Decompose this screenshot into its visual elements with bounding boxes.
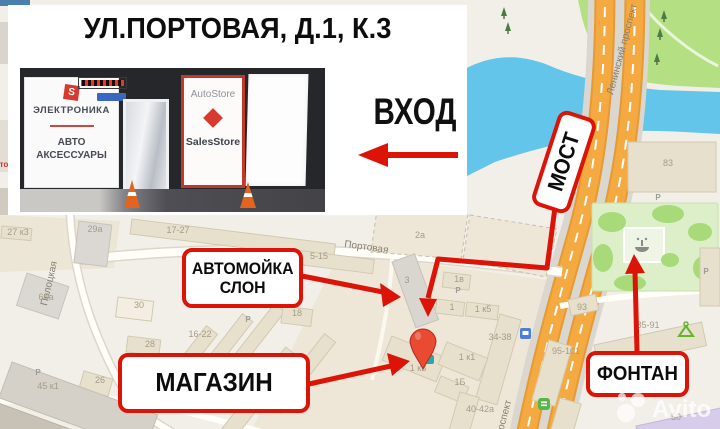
map-label-bldg: 28 (145, 339, 155, 349)
pavement (20, 189, 325, 212)
map-label-bldg: 1Б (455, 377, 466, 387)
map-label-bldg: 50 (671, 412, 681, 422)
entrance-label: ВХОД (371, 91, 459, 133)
map-label-bldg: 1в (454, 274, 464, 284)
left-banner-title: ЭЛЕКТРОНИКА (25, 105, 118, 116)
open-white-door (246, 74, 309, 186)
street-sign (97, 93, 126, 101)
map-label-bldg: 34-38 (488, 332, 511, 342)
callout-carwash-line2: СЛОН (192, 278, 294, 297)
map-label-bldg: 17-27 (166, 225, 189, 235)
map-label-bldg: 93 (577, 302, 587, 312)
left-banner-sub1: АВТО (25, 136, 118, 149)
callout-fountain-label: ФОНТАН (597, 363, 678, 385)
map-label-bldg: 45 к1 (37, 381, 58, 391)
center-banner: AutoStore SalesStore (181, 75, 245, 188)
transit-stop-icon (520, 328, 531, 339)
map-label-bldg: 1 (449, 302, 454, 312)
map-label-bldg: 26 (95, 375, 105, 385)
map-label-parking: Р (455, 286, 461, 295)
map-label-bldg: 5-15 (310, 251, 328, 261)
map-label-parking: Р (703, 267, 709, 276)
map-label-bldg: 18 (292, 308, 302, 318)
map-label-parking: Р (245, 315, 251, 324)
page-title: УЛ.ПОРТОВАЯ, Д.1, К.3 (22, 13, 453, 46)
fountain-park (592, 203, 718, 291)
led-ticker (78, 77, 127, 89)
map-label-bldg: 29а (87, 224, 102, 234)
entrance-arrow (346, 135, 466, 175)
map-label-bldg: 40-42а (466, 404, 494, 414)
callout-fountain: ФОНТАН (586, 351, 689, 397)
glass-door (123, 99, 169, 202)
store-poi-icon (425, 355, 434, 364)
info-panel: УЛ.ПОРТОВАЯ, Д.1, К.3 S ЭЛЕКТРОНИКА АВТО… (8, 5, 467, 215)
center-banner-top: AutoStore (184, 89, 242, 100)
map-label-bldg: 1 к1 (459, 352, 475, 362)
map-label-parking: Р (655, 193, 661, 202)
map-label-parking: Р (35, 368, 41, 377)
diamond-logo-icon (203, 108, 223, 128)
callout-carwash-line1: АВТОМОЙКА (192, 259, 294, 278)
map-label-bldg: 3 (404, 275, 409, 285)
map-label-bldg: 1 к5 (475, 304, 491, 314)
map-label-bldg: 27 к3 (7, 227, 28, 237)
map-label-bldg: 16-22 (188, 329, 211, 339)
map-label-bldg: 64а (38, 292, 53, 302)
callout-carwash: АВТОМОЙКА СЛОН (182, 248, 303, 308)
promo-image: ПортоваяПолоцкаяЛенинский проспектпроспе… (0, 0, 720, 429)
storefront-photo: S ЭЛЕКТРОНИКА АВТО АКСЕССУАРЫ AutoStore … (20, 68, 325, 212)
callout-shop-label: МАГАЗИН (155, 368, 272, 397)
shop-icon (538, 398, 550, 410)
callout-shop: МАГАЗИН (118, 353, 310, 413)
map-label-bldg: 85-91 (636, 320, 659, 330)
center-banner-bottom: SalesStore (184, 136, 242, 148)
map-label-bldg: 95-101 (552, 346, 580, 356)
map-label-bldg: 2а (415, 230, 425, 240)
map-label-bldg: 83 (663, 158, 673, 168)
map-label-bldg: 1 к3 (410, 363, 426, 373)
left-banner-sub2: АКСЕССУАРЫ (25, 149, 118, 162)
map-label-bldg: 30 (134, 300, 144, 310)
banner-divider (50, 125, 94, 127)
